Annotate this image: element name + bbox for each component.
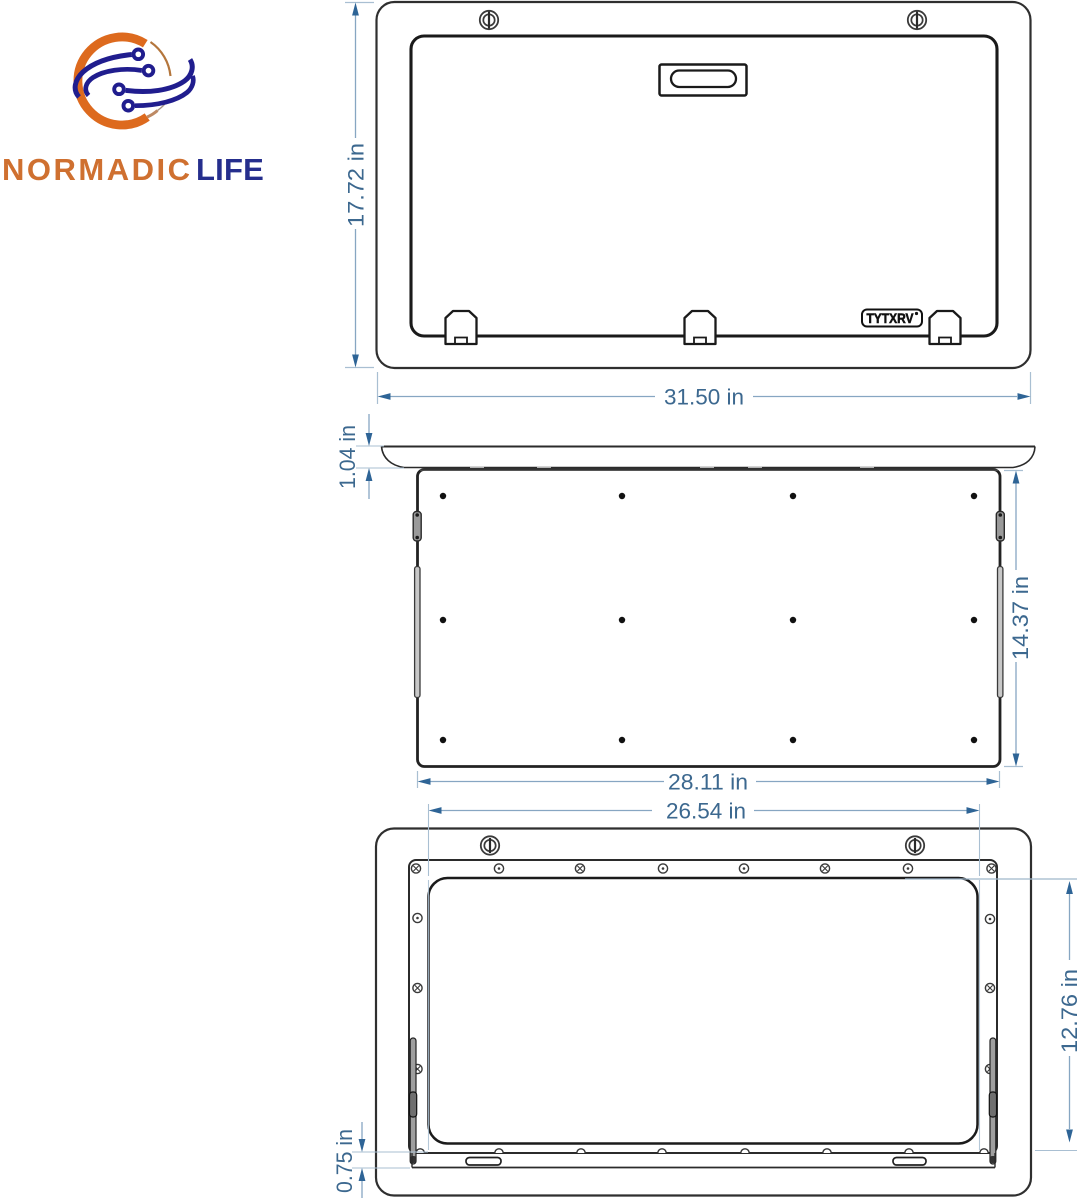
svg-text:31.50 in: 31.50 in	[664, 385, 744, 410]
svg-text:TYTXRV: TYTXRV	[867, 310, 915, 326]
svg-text:NORMADICLIFE: NORMADICLIFE	[2, 152, 264, 187]
svg-text:12.76 in: 12.76 in	[1057, 969, 1081, 1053]
svg-text:28.11 in: 28.11 in	[668, 770, 748, 795]
svg-text:17.72 in: 17.72 in	[344, 143, 369, 227]
svg-text:26.54 in: 26.54 in	[666, 799, 746, 824]
svg-text:14.37 in: 14.37 in	[1008, 576, 1033, 660]
svg-text:0.75 in: 0.75 in	[332, 1129, 357, 1193]
svg-text:1.04 in: 1.04 in	[335, 425, 360, 489]
